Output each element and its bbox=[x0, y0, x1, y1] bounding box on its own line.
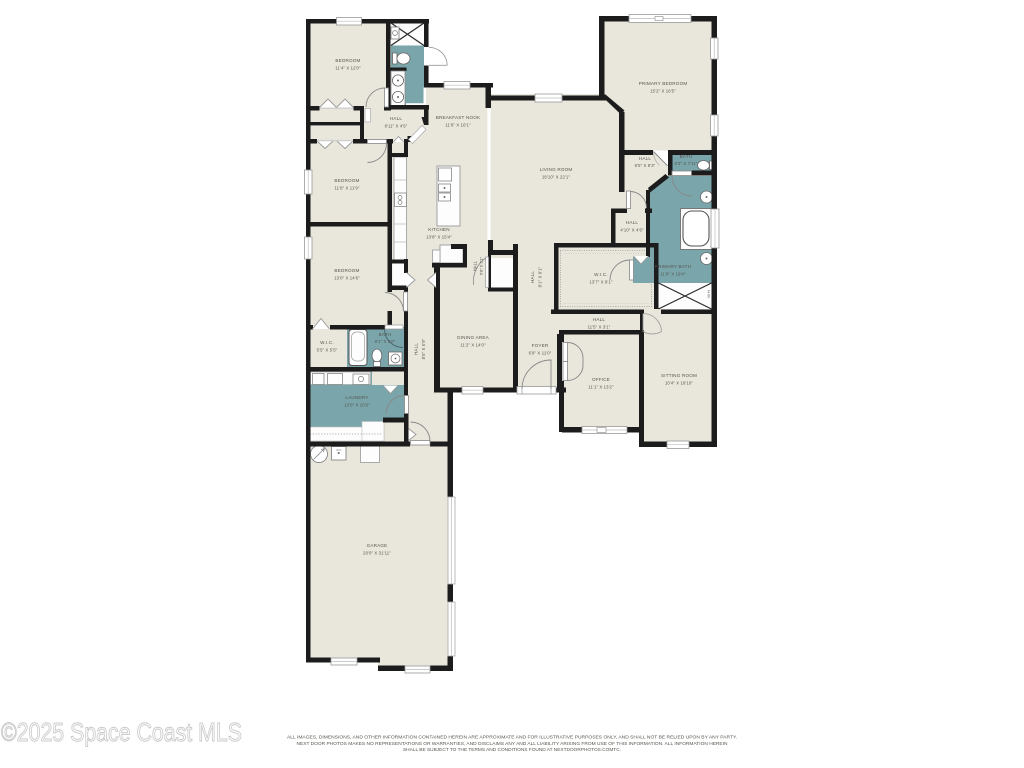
svg-text:11'6" X 19'4": 11'6" X 19'4" bbox=[660, 272, 686, 277]
svg-text:8'11" X 4'5": 8'11" X 4'5" bbox=[385, 124, 408, 129]
svg-text:13'0" X 14'6": 13'0" X 14'6" bbox=[334, 276, 360, 281]
svg-text:6'9" X 11'0": 6'9" X 11'0" bbox=[529, 351, 552, 356]
svg-text:LIVING ROOM: LIVING ROOM bbox=[540, 167, 573, 172]
svg-text:BEDROOM: BEDROOM bbox=[334, 178, 359, 183]
svg-text:OFFICE: OFFICE bbox=[592, 377, 610, 382]
svg-text:PRIMARY BATH: PRIMARY BATH bbox=[655, 264, 691, 269]
svg-text:8'5" X 5'9": 8'5" X 5'9" bbox=[421, 338, 426, 359]
svg-text:8'1" X 5'0": 8'1" X 5'0" bbox=[375, 339, 396, 344]
svg-text:8'1" X 9'1": 8'1" X 9'1" bbox=[538, 266, 543, 287]
svg-text:10'4" X 18'10": 10'4" X 18'10" bbox=[665, 381, 693, 386]
svg-text:11'8" X 11'9": 11'8" X 11'9" bbox=[335, 186, 360, 191]
svg-text:HALL: HALL bbox=[593, 317, 606, 322]
svg-text:5'8" X 2'1": 5'8" X 2'1" bbox=[479, 256, 484, 275]
svg-text:11'1" X 13'2": 11'1" X 13'2" bbox=[588, 385, 614, 390]
svg-text:SHALL BE SUBJECT TO THE TERMS: SHALL BE SUBJECT TO THE TERMS AND CONDIT… bbox=[403, 747, 621, 752]
svg-text:11'4" X 12'0": 11'4" X 12'0" bbox=[335, 66, 361, 71]
svg-text:HALL: HALL bbox=[626, 220, 639, 225]
svg-text:BATH: BATH bbox=[379, 332, 392, 337]
svg-text:5'5" X 5'5": 5'5" X 5'5" bbox=[317, 348, 338, 353]
svg-text:SITTING ROOM: SITTING ROOM bbox=[661, 373, 697, 378]
svg-text:PRIMARY BEDROOM: PRIMARY BEDROOM bbox=[639, 81, 688, 86]
svg-text:ALL IMAGES, DIMENSIONS, AND OT: ALL IMAGES, DIMENSIONS, AND OTHER INFORM… bbox=[287, 735, 737, 740]
svg-text:13'7" X 9'1": 13'7" X 9'1" bbox=[589, 280, 612, 285]
svg-text:KITCHEN: KITCHEN bbox=[428, 227, 450, 232]
svg-text:W H: W H bbox=[706, 290, 711, 298]
svg-text:15'2" X 16'5": 15'2" X 16'5" bbox=[650, 89, 676, 94]
svg-text:11'2" X 14'0": 11'2" X 14'0" bbox=[460, 343, 486, 348]
svg-text:©2025 Space Coast MLS: ©2025 Space Coast MLS bbox=[1, 717, 242, 747]
svg-text:6'3" X 7'11": 6'3" X 7'11" bbox=[675, 161, 698, 166]
svg-text:HALL: HALL bbox=[530, 271, 535, 284]
svg-text:HALL: HALL bbox=[390, 116, 403, 121]
svg-text:13'8" X 15'4": 13'8" X 15'4" bbox=[426, 235, 452, 240]
svg-text:HALL: HALL bbox=[473, 260, 478, 271]
svg-text:W.I.C.: W.I.C. bbox=[594, 272, 608, 277]
svg-text:BEDROOM: BEDROOM bbox=[334, 268, 359, 273]
svg-text:11'6" X 10'1": 11'6" X 10'1" bbox=[445, 123, 471, 128]
svg-text:6'5" X 8'3": 6'5" X 8'3" bbox=[635, 163, 656, 168]
svg-text:GARAGE: GARAGE bbox=[367, 543, 388, 548]
svg-text:BREAKFAST NOOK: BREAKFAST NOOK bbox=[436, 115, 481, 120]
svg-text:BATH: BATH bbox=[680, 154, 693, 159]
svg-text:DINING AREA: DINING AREA bbox=[457, 335, 490, 340]
svg-text:LAUNDRY: LAUNDRY bbox=[345, 395, 368, 400]
svg-text:W.I.C.: W.I.C. bbox=[320, 340, 334, 345]
svg-text:HALL: HALL bbox=[639, 156, 652, 161]
svg-text:11'5" X 3'1": 11'5" X 3'1" bbox=[588, 325, 611, 330]
svg-text:4'10" X 4'6": 4'10" X 4'6" bbox=[620, 228, 643, 233]
svg-text:20'0" X 31'11": 20'0" X 31'11" bbox=[363, 551, 391, 556]
svg-text:13'0" X 10'6": 13'0" X 10'6" bbox=[344, 403, 370, 408]
svg-text:HALL: HALL bbox=[414, 343, 419, 356]
svg-text:BEDROOM: BEDROOM bbox=[335, 58, 360, 63]
svg-text:FOYER: FOYER bbox=[532, 343, 549, 348]
svg-text:18'10" X 22'1": 18'10" X 22'1" bbox=[542, 175, 570, 180]
svg-text:NEXT DOOR PHOTOS MAKES NO REPR: NEXT DOOR PHOTOS MAKES NO REPRESENTATION… bbox=[297, 741, 728, 746]
